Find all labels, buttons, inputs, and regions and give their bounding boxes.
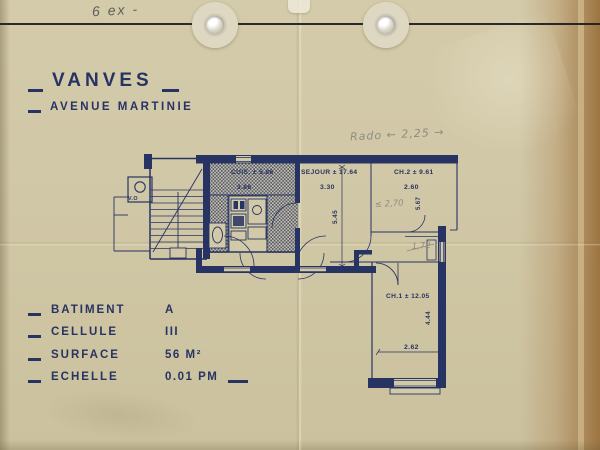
bath-hatch (267, 195, 298, 253)
door-arc (408, 215, 425, 232)
sejour-label: SEJOUR ± 17.64 (301, 169, 358, 176)
sejour-dimension-line (339, 165, 345, 268)
window-sill (390, 388, 440, 394)
ch1-label: CH.1 ± 12.05 (386, 293, 430, 300)
handwritten-ch2-width: ≤ 2,70 (375, 199, 404, 210)
sejour-bottom-wall (196, 266, 376, 273)
staircase (150, 159, 210, 259)
ch1-width: 2.62 (404, 344, 419, 351)
scanned-floor-plan-page: 6 ex - Rado ← 2,25 → VANVES AVENUE MARTI… (0, 0, 600, 450)
chute-label: V.O (128, 196, 138, 202)
ch2-side: 5.67 (416, 196, 422, 210)
floor-plan-drawing: CUIS. ± 5.86 3.88 SEJOUR ± 17.64 3.30 5.… (0, 0, 600, 450)
sejour-width: 3.30 (320, 184, 335, 191)
corner-post (144, 154, 152, 169)
ch2-width: 2.60 (404, 184, 419, 191)
door-arc (376, 263, 398, 285)
sejour-depth: 5.45 (332, 210, 339, 224)
ch2-label: CH.2 ± 9.61 (394, 169, 434, 176)
kitchen-hatch (210, 163, 298, 195)
ch1-depth: 4.44 (425, 311, 432, 325)
kitchen-label: CUIS. ± 5.86 (231, 169, 274, 176)
top-wall (196, 155, 458, 164)
kitchen-width: 3.88 (237, 184, 251, 191)
handwritten-wc-width: 1,72 (412, 241, 432, 252)
adjacent-unit-stub (114, 197, 150, 251)
window-swing-arc (296, 236, 326, 266)
